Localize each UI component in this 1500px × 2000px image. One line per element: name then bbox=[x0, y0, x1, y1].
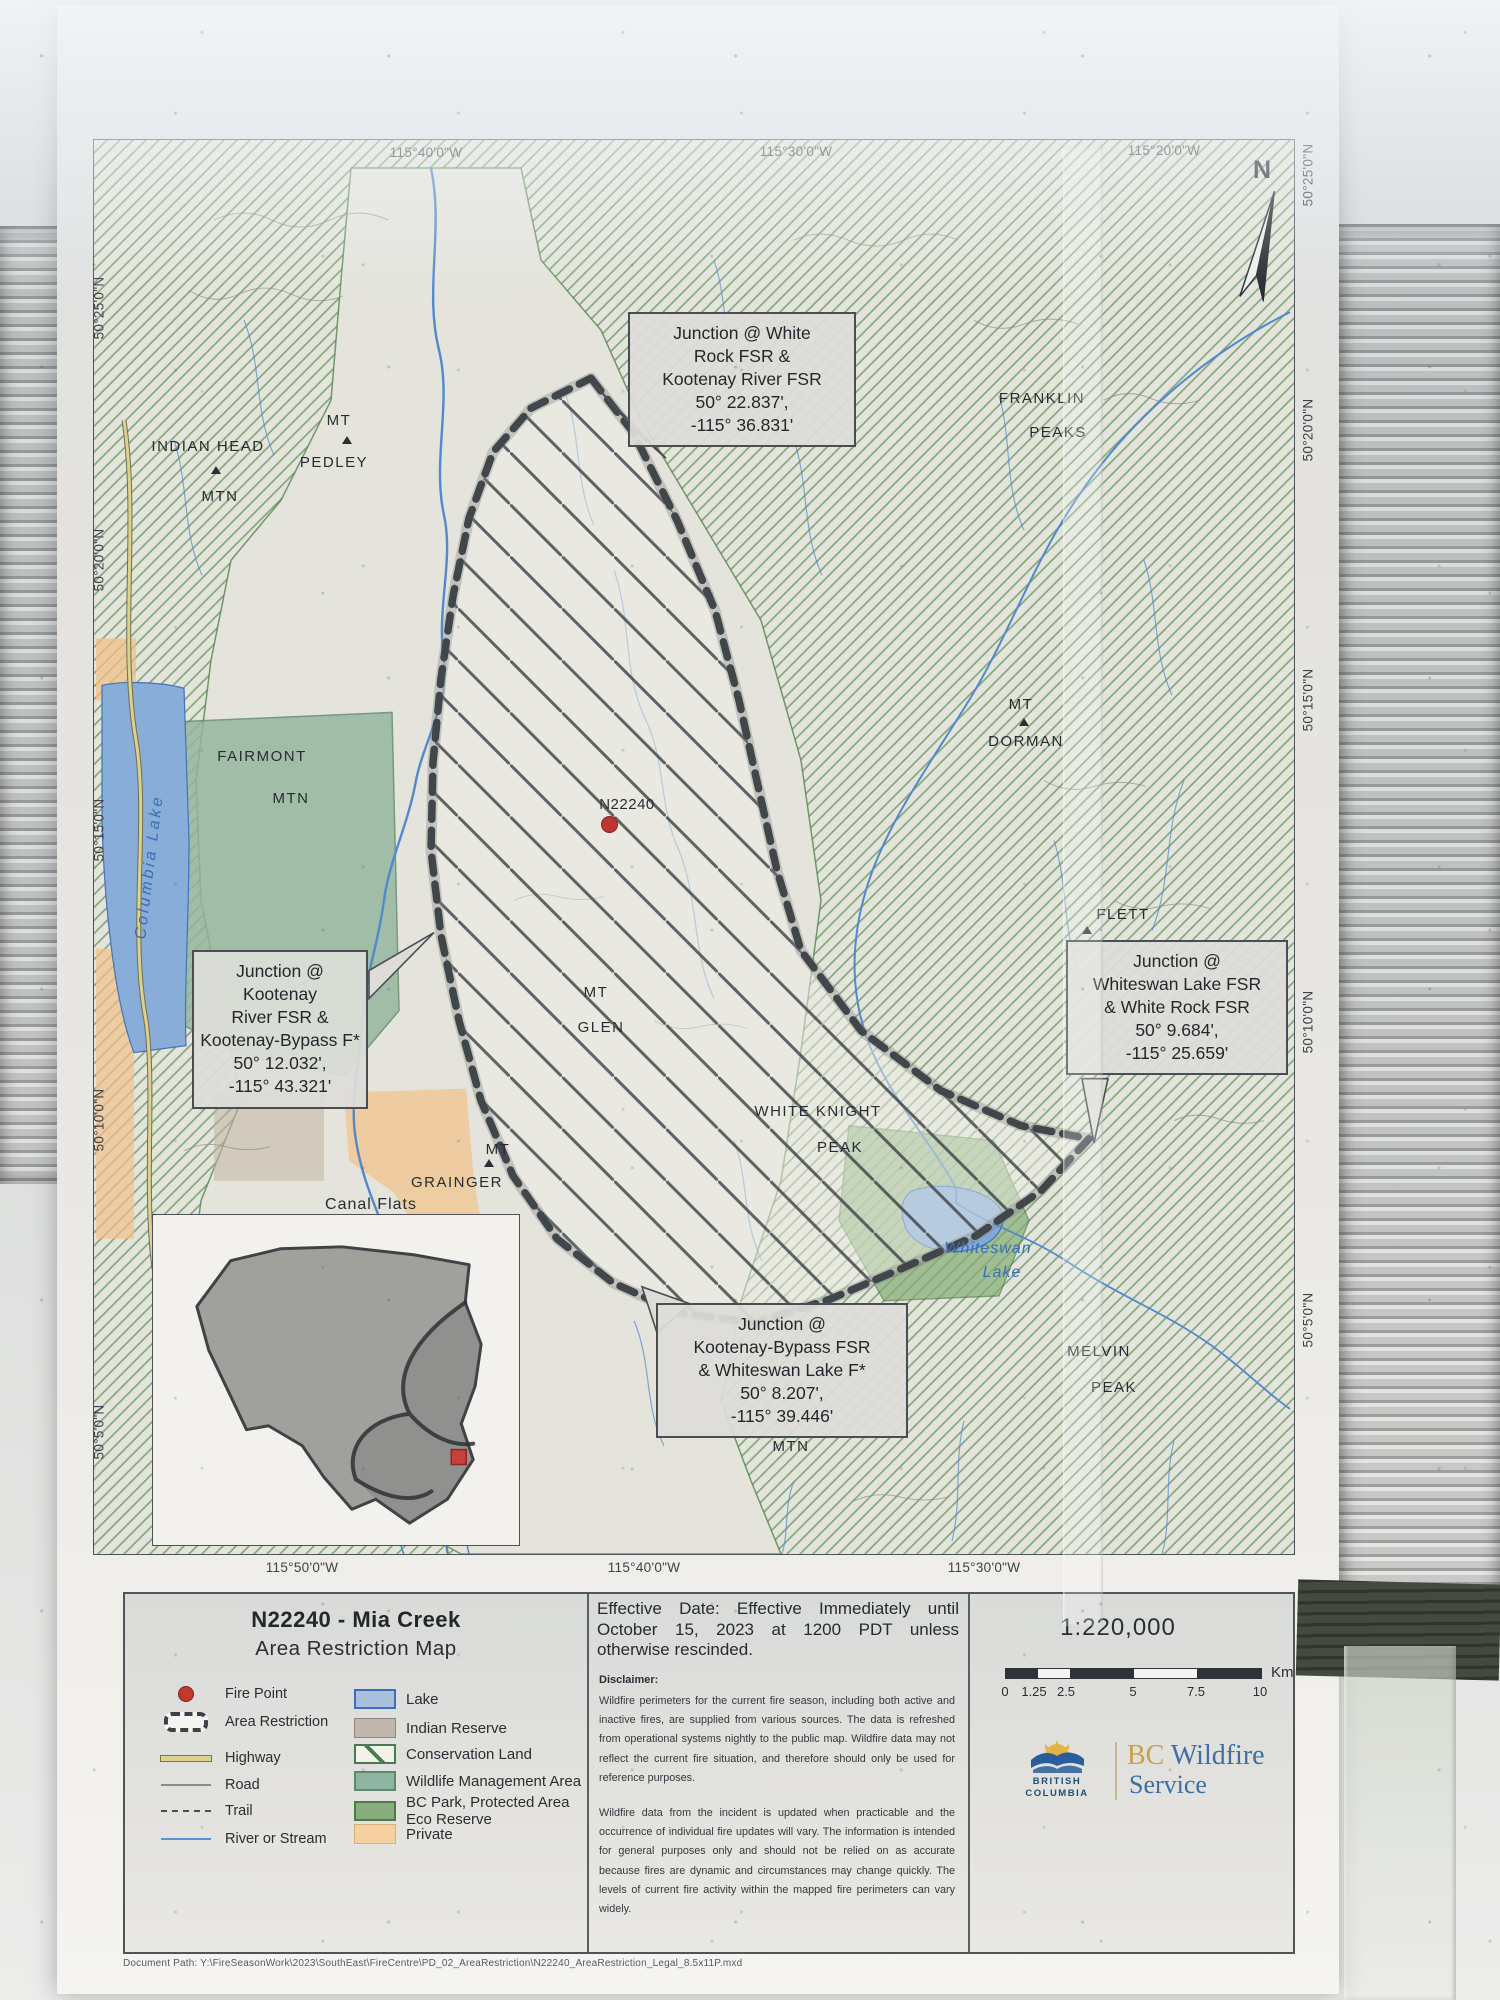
graticule-right-2: 50°15'0"N bbox=[1301, 669, 1316, 732]
legend-item-highway: Highway bbox=[157, 1750, 281, 1766]
river-icon bbox=[161, 1838, 211, 1841]
label-mt-glen-1: MT bbox=[584, 984, 609, 1001]
indian-reserve-swatch bbox=[354, 1718, 396, 1738]
logo-wordmark-line1: BC Wildfire bbox=[1127, 1740, 1265, 1772]
label-mt-dorman-1: MT bbox=[1009, 696, 1034, 713]
legend-item-indian-reserve: Indian Reserve bbox=[354, 1718, 507, 1738]
logo-org-line2: COLUMBIA bbox=[1005, 1788, 1109, 1799]
graticule-right-0: 50°25'0"N bbox=[1301, 144, 1316, 207]
legend-item-trail: Trail bbox=[157, 1803, 253, 1819]
fire-id-label: N22240 bbox=[599, 796, 655, 813]
disclaimer-paragraph-1: Wildfire perimeters for the current fire… bbox=[599, 1692, 955, 1788]
scale-tick-0: 0 bbox=[1001, 1684, 1008, 1699]
divider bbox=[968, 1594, 970, 1952]
label-partial-mtn: MTN bbox=[773, 1438, 810, 1455]
bc-province-map bbox=[153, 1215, 519, 1545]
fire-point-marker bbox=[601, 816, 618, 833]
label-indian-head: INDIAN HEAD bbox=[151, 438, 264, 455]
lake-swatch bbox=[354, 1689, 396, 1709]
fire-point-icon bbox=[178, 1686, 194, 1702]
logo-org-line1: BRITISH bbox=[1005, 1776, 1109, 1787]
graticule-left-3: 50°10'0"N bbox=[92, 1089, 107, 1152]
legend-item-wildlife: Wildlife Management Area bbox=[354, 1771, 581, 1791]
graticule-top-1: 115°30'0"W bbox=[760, 144, 833, 159]
legend-item-lake: Lake bbox=[354, 1689, 439, 1709]
divider bbox=[587, 1594, 589, 1952]
graticule-left-1: 50°20'0"N bbox=[92, 529, 107, 592]
plastic-sleeve-edge bbox=[1344, 1646, 1456, 2000]
graticule-left-4: 50°5'0"N bbox=[92, 1405, 107, 1460]
label-mt-pedley-1: MT bbox=[327, 412, 352, 429]
summit-marker bbox=[1019, 718, 1029, 726]
summit-marker bbox=[211, 466, 221, 474]
label-white-knight-2: PEAK bbox=[817, 1139, 863, 1156]
bc-overview-inset bbox=[152, 1214, 520, 1546]
summit-marker bbox=[484, 1159, 494, 1167]
callout-white-rock-junction: Junction @ White Rock FSR & Kootenay Riv… bbox=[628, 312, 856, 447]
graticule-bottom-1: 115°40'0"W bbox=[608, 1560, 681, 1575]
callout-bypass-whiteswan-junction: Junction @ Kootenay-Bypass FSR & Whitesw… bbox=[656, 1303, 908, 1438]
conservation-swatch bbox=[354, 1744, 396, 1764]
north-label: N bbox=[1253, 156, 1271, 185]
label-mt-pedley-2: PEDLEY bbox=[300, 454, 368, 471]
label-mt-dorman-2: DORMAN bbox=[988, 733, 1064, 750]
label-mt-grainger-2: GRAINGER bbox=[411, 1174, 503, 1191]
document-path: Document Path: Y:\FireSeasonWork\2023\So… bbox=[123, 1958, 742, 1969]
scale-bar bbox=[1005, 1668, 1262, 1679]
wildlife-swatch bbox=[354, 1771, 396, 1791]
highway-icon bbox=[160, 1755, 212, 1762]
laminate-seam bbox=[1063, 148, 1103, 1626]
map-subtitle: Area Restriction Map bbox=[125, 1637, 587, 1661]
corrugated-panel-right bbox=[1338, 224, 1500, 1624]
label-fairmont: FAIRMONT bbox=[217, 748, 307, 765]
label-fairmont-mtn: MTN bbox=[273, 790, 310, 807]
scale-tick-3: 5 bbox=[1129, 1684, 1136, 1699]
label-flett: FLETT bbox=[1096, 906, 1149, 923]
map-title-block: N22240 - Mia Creek Area Restriction Map … bbox=[123, 1592, 1295, 1954]
legend-item-river: River or Stream bbox=[157, 1831, 327, 1847]
legend-item-area-restriction: Area Restriction bbox=[157, 1712, 328, 1732]
label-mt-grainger-1: MT bbox=[486, 1141, 511, 1158]
logo-divider bbox=[1115, 1742, 1117, 1800]
scale-unit: Km bbox=[1271, 1664, 1294, 1681]
bc-park-swatch bbox=[354, 1801, 396, 1821]
legend-item-private: Private bbox=[354, 1824, 453, 1844]
scale-tick-2: 2.5 bbox=[1057, 1684, 1075, 1699]
legend-item-fire-point: Fire Point bbox=[157, 1686, 287, 1702]
graticule-bottom-2: 115°30'0"W bbox=[948, 1560, 1021, 1575]
logo-wordmark-line2: Service bbox=[1129, 1770, 1207, 1800]
callout-kootenay-bypass-junction: Junction @ Kootenay River FSR & Kootenay… bbox=[192, 950, 368, 1109]
graticule-top-2: 115°20'0"W bbox=[1128, 143, 1201, 158]
graticule-right-1: 50°20'0"N bbox=[1301, 399, 1316, 462]
graticule-bottom-0: 115°50'0"W bbox=[266, 1560, 339, 1575]
label-mt-glen-2: GLEN bbox=[578, 1019, 625, 1036]
graticule-left-0: 50°25'0"N bbox=[92, 277, 107, 340]
effective-date-text: Effective Date: Effective Immediately un… bbox=[597, 1599, 959, 1661]
label-canal-flats: Canal Flats bbox=[325, 1196, 417, 1214]
scale-tick-4: 7.5 bbox=[1187, 1684, 1205, 1699]
scale-tick-1: 1.25 bbox=[1021, 1684, 1046, 1699]
legend-item-road: Road bbox=[157, 1777, 260, 1793]
incident-location-square bbox=[451, 1450, 466, 1465]
trail-icon bbox=[161, 1810, 211, 1812]
scale-tick-5: 10 bbox=[1253, 1684, 1267, 1699]
summit-marker bbox=[342, 436, 352, 444]
road-icon bbox=[161, 1784, 211, 1786]
label-whiteswan-2: Lake bbox=[983, 1264, 1022, 1282]
area-restriction-icon bbox=[164, 1712, 208, 1732]
scale-ratio: 1:220,000 bbox=[968, 1614, 1268, 1642]
label-white-knight-1: WHITE KNIGHT bbox=[754, 1103, 881, 1120]
label-whiteswan-1: Whiteswan bbox=[944, 1240, 1031, 1258]
graticule-top-0: 115°40'0"W bbox=[390, 145, 463, 160]
private-swatch bbox=[354, 1824, 396, 1844]
bc-government-emblem bbox=[1027, 1740, 1087, 1774]
map-title: N22240 - Mia Creek bbox=[125, 1607, 587, 1633]
photo-of-posted-map: 115°40'0"W 115°30'0"W 115°20'0"W 115°50'… bbox=[0, 0, 1500, 2000]
graticule-right-4: 50°5'0"N bbox=[1301, 1293, 1316, 1348]
label-indian-head-mtn: MTN bbox=[202, 488, 239, 505]
graticule-left-2: 50°15'0"N bbox=[92, 799, 107, 862]
graticule-right-3: 50°10'0"N bbox=[1301, 991, 1316, 1054]
disclaimer-title: Disclaimer: bbox=[599, 1674, 658, 1686]
legend-item-conservation: Conservation Land bbox=[354, 1744, 532, 1764]
disclaimer-paragraph-2: Wildfire data from the incident is updat… bbox=[599, 1804, 955, 1919]
